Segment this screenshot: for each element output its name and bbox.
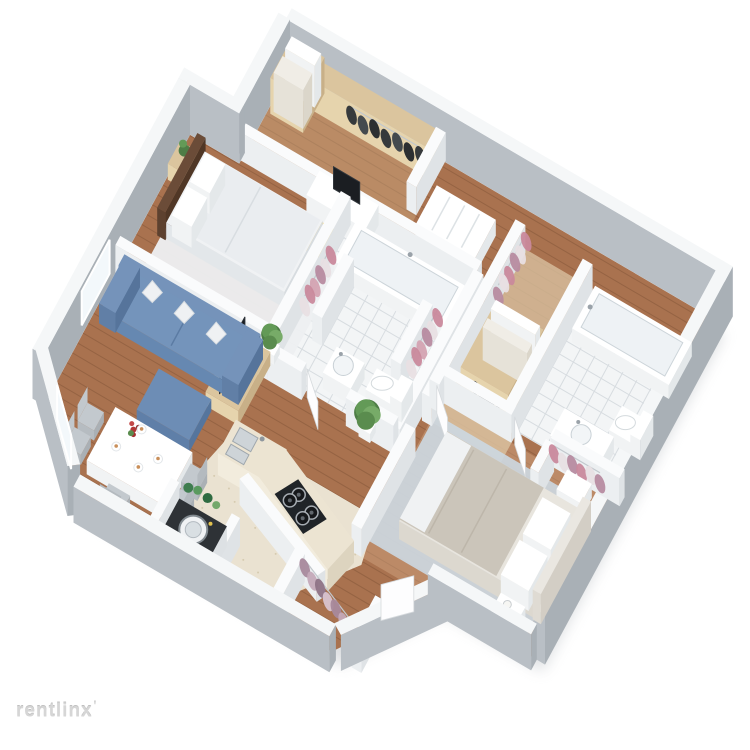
watermark-tick: ' <box>94 700 98 712</box>
floorplan-3d-render <box>0 0 750 750</box>
watermark-text: rentlinx <box>16 700 93 721</box>
stove-burner-center <box>301 516 305 520</box>
floorplan-image: rentlinx' <box>0 0 750 750</box>
watermark-logo: rentlinx' <box>16 700 97 722</box>
stove-burner-center <box>297 493 301 497</box>
stove-burner-center <box>288 498 292 502</box>
stove-burner-center <box>310 511 314 515</box>
